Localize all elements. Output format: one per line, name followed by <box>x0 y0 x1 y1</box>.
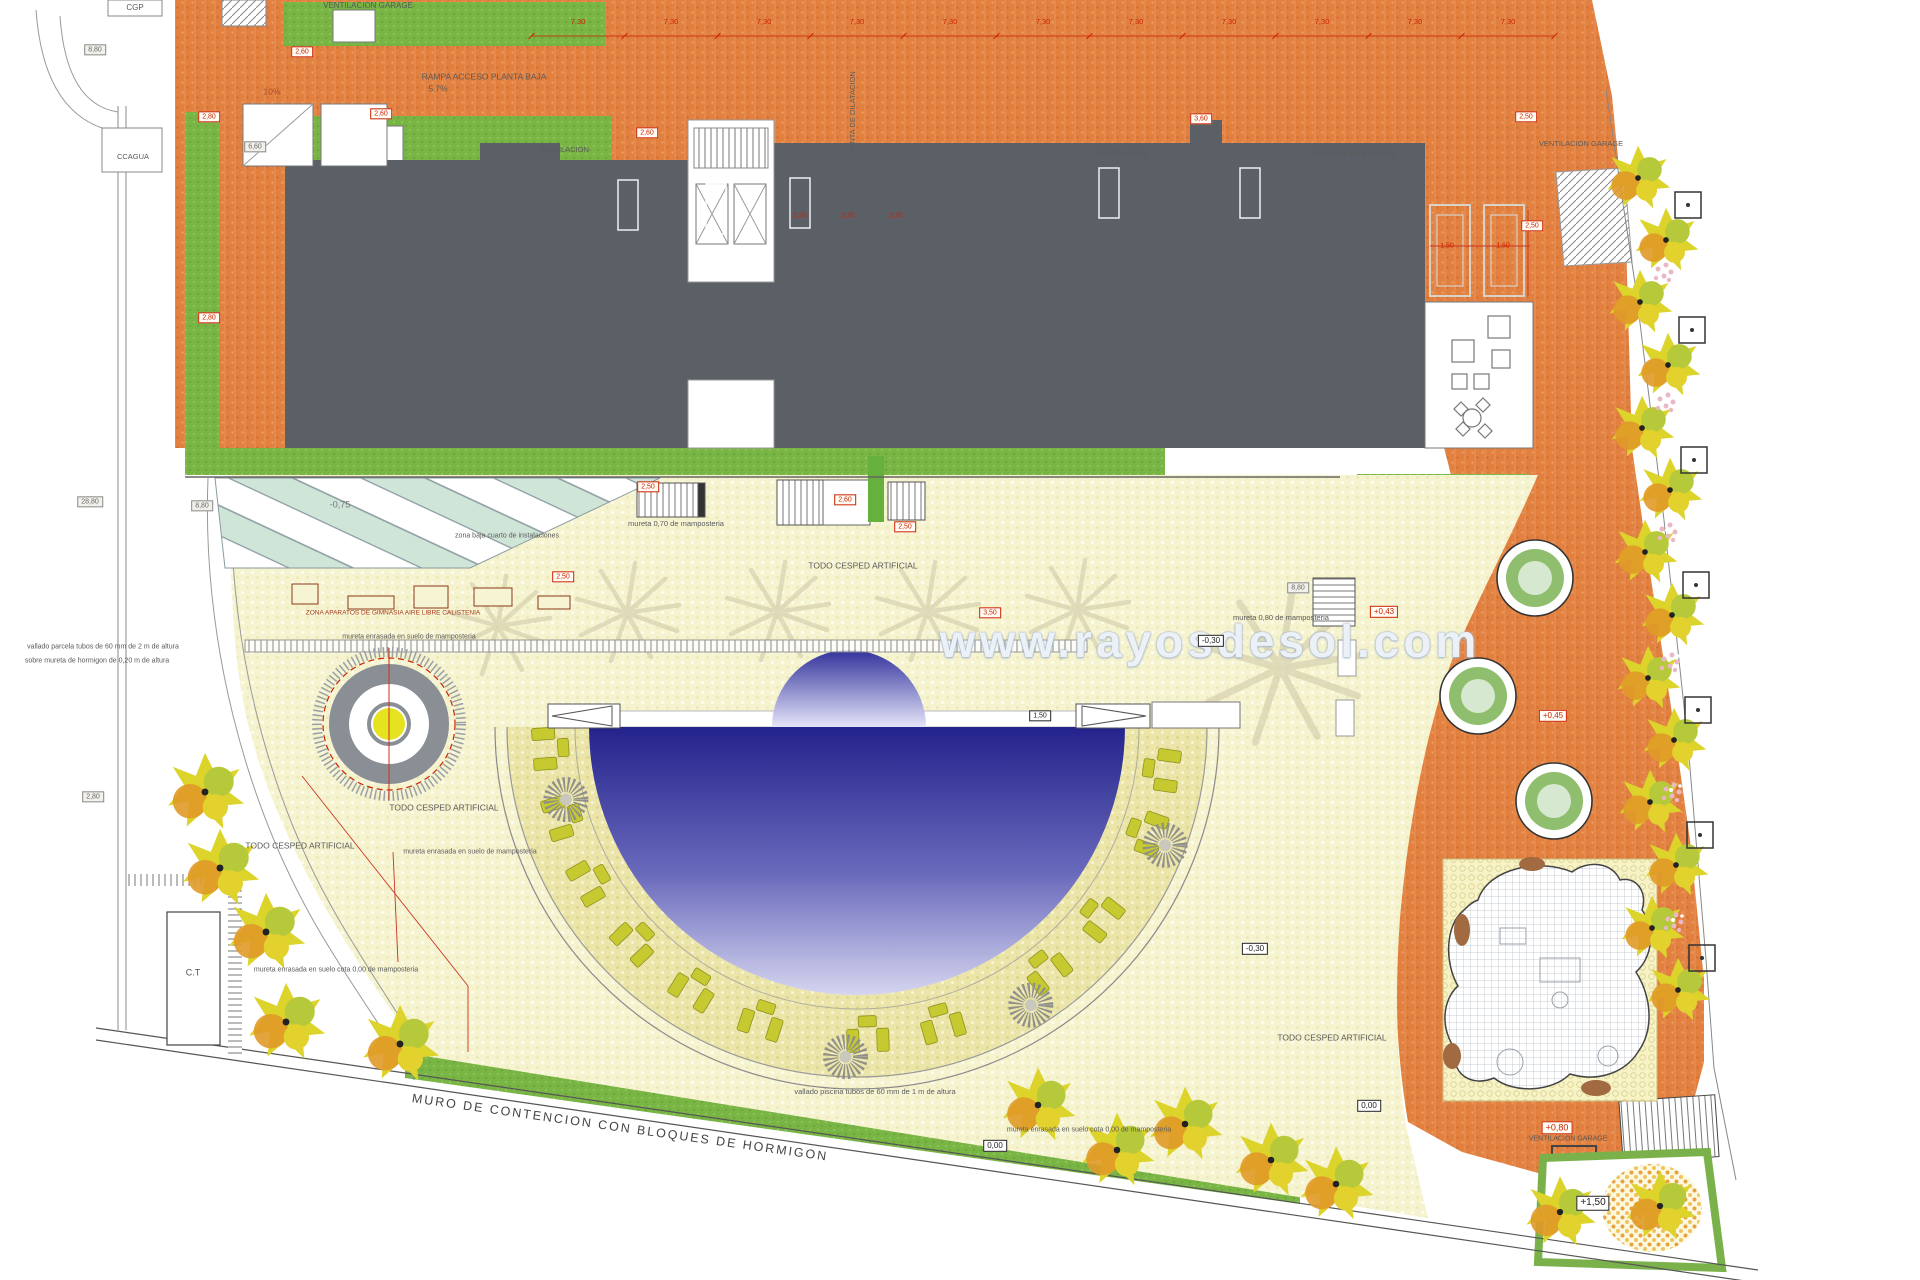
text-label: JUNTA DE DILATACION <box>1312 150 1394 158</box>
dimension-label: 8,80 <box>1287 582 1309 593</box>
text-label: vallado piscina tubos de 60 mm de 1 m de… <box>794 1088 955 1096</box>
tree-pit <box>1685 697 1711 723</box>
dimension-label: 28,80 <box>77 496 103 507</box>
text-label: JUNTA DE DILATACION <box>849 71 857 153</box>
vent-box <box>333 10 375 42</box>
text-label: mureta 0,70 de mamposteria <box>628 520 724 528</box>
text-label: mureta 0,80 de mamposteria <box>1233 614 1329 622</box>
dimension-label: 2,80 <box>82 791 104 802</box>
dimension-label: 2,80 <box>198 312 220 323</box>
text-label: 2,30 <box>841 212 855 219</box>
text-label: 7,30 <box>1408 18 1423 26</box>
text-label: 7,30 <box>850 18 865 26</box>
building-roofs <box>285 120 1425 448</box>
dimension-label: 3,50 <box>979 607 1001 618</box>
text-label: 2,50 <box>793 212 807 219</box>
text-label: VENTILACION GARAGE <box>1529 1135 1608 1142</box>
text-label: VENTILACION GARAGE <box>323 2 413 10</box>
dimension-label: 2,50 <box>637 481 659 492</box>
round-planter <box>1516 763 1592 839</box>
text-label: 10% <box>263 88 280 97</box>
dimension-label: 1,50 <box>1029 710 1051 721</box>
gym-apparatus <box>474 588 512 606</box>
gym-apparatus <box>538 596 570 609</box>
text-label: VENTILACION GARAGE <box>1539 140 1623 148</box>
lounge-room <box>1425 302 1533 448</box>
dimension-label: 2,50 <box>1521 220 1543 231</box>
gym-apparatus <box>348 596 394 609</box>
text-label: 7,30 <box>757 18 772 26</box>
dimension-label: +0,43 <box>1370 606 1398 618</box>
text-label: -0,75 <box>330 500 351 509</box>
text-label: mureta enrasada en suelo cota 0,00 de ma… <box>1007 1126 1171 1133</box>
text-label: ZONA APARATOS DE GIMNASIA AIRE LIBRE CAL… <box>306 611 480 618</box>
dimension-label: 2,50 <box>552 571 574 582</box>
text-label: mureta enrasada en suelo cota 0,00 de ma… <box>254 966 418 973</box>
text-label: sobre mureta de hormigon de 0,20 m de al… <box>25 657 169 664</box>
round-planter <box>1440 658 1516 734</box>
dimension-label: 8,80 <box>84 44 106 55</box>
text-label: 7,30 <box>571 18 586 26</box>
dimension-label: 6,60 <box>244 141 266 152</box>
text-label: 2,30 <box>889 212 903 219</box>
text-label: 7,30 <box>1036 18 1051 26</box>
tree <box>1638 333 1701 396</box>
gym-apparatus <box>414 586 448 608</box>
text-label: VENTILACION <box>1097 150 1147 158</box>
tree <box>168 753 244 829</box>
dimension-label: 2,50 <box>894 521 916 532</box>
dimension-label: 8,80 <box>191 500 213 511</box>
text-label: 1,50 <box>1440 242 1454 249</box>
text-label: CGP <box>126 4 143 12</box>
text-label: TODO CESPED ARTIFICIAL <box>808 562 917 571</box>
text-label: 7,30 <box>1222 18 1237 26</box>
round-planter <box>1497 540 1573 616</box>
tree-pit <box>1687 822 1713 848</box>
text-label: 7,30 <box>1501 18 1516 26</box>
tree <box>1636 208 1699 271</box>
dimension-label: +0,45 <box>1539 710 1567 722</box>
text-label: vallado parcela tubos de 60 mm de 2 m de… <box>27 643 179 650</box>
flower-shrub <box>1654 263 1674 283</box>
dimension-label: 2,80 <box>198 111 220 122</box>
dimension-label: -0,30 <box>1198 635 1224 647</box>
text-label: 7,30 <box>1129 18 1144 26</box>
text-label: TODO CESPED ARTIFICIAL <box>389 804 498 813</box>
text-label: VENTILACION <box>539 146 589 154</box>
dimension-label: 2,60 <box>636 127 658 138</box>
tree <box>1640 458 1703 521</box>
dimension-label: +1,50 <box>1576 1196 1609 1211</box>
tree-pit <box>1679 317 1705 343</box>
flower-shrub <box>1656 393 1676 413</box>
text-label: TODO CESPED ARTIFICIAL <box>1277 1034 1386 1043</box>
text-label: 7,30 <box>1315 18 1330 26</box>
tree-pit <box>1681 447 1707 473</box>
dimension-label: 2,60 <box>834 494 856 505</box>
dimension-label: -0,30 <box>1242 943 1268 955</box>
text-label: TODO CESPED ARTIFICIAL <box>245 842 354 851</box>
dimension-label: +0,80 <box>1542 1121 1573 1134</box>
text-label: C.T <box>186 968 201 977</box>
text-label: CCAGUA <box>117 153 149 161</box>
text-label: 1,50 <box>1496 242 1510 249</box>
dimension-label: 0,00 <box>1357 1100 1381 1112</box>
dimension-label: 0,00 <box>983 1140 1007 1152</box>
text-label: mureta enrasada en suelo de mamposteria <box>403 848 536 855</box>
dimension-label: 2,50 <box>1515 111 1537 122</box>
dimension-label: 2,60 <box>291 46 313 57</box>
text-label: 7,30 <box>664 18 679 26</box>
dimension-label: 3,60 <box>1190 113 1212 124</box>
dimension-label: 2,60 <box>370 108 392 119</box>
text-label: 7,30 <box>943 18 958 26</box>
text-label: 5.7% <box>428 85 447 94</box>
tree-pit <box>1683 572 1709 598</box>
text-label: RAMPA ACCESO PLANTA BAJA <box>422 73 547 82</box>
site-plan-canvas: www.rayosdesol.com VENTILACION GARAGECGP… <box>0 0 1920 1280</box>
text-label: zona baja cuarto de instalaciones <box>455 532 559 539</box>
tree-pit <box>1675 192 1701 218</box>
gym-apparatus <box>292 584 318 604</box>
tree <box>249 983 325 1059</box>
text-label: mureta enrasada en suelo de mamposteria <box>342 633 475 640</box>
